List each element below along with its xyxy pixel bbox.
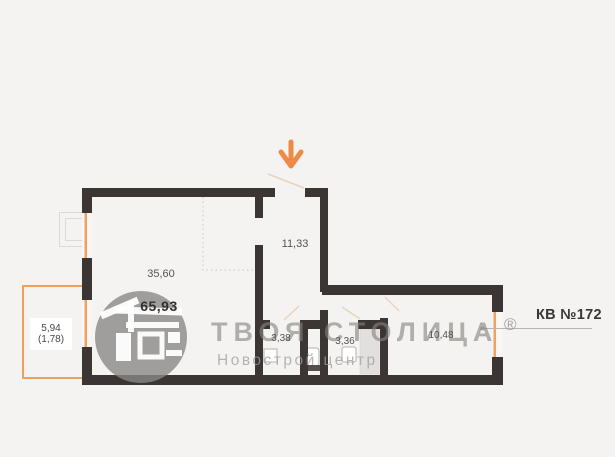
floor-plan-drawing [0, 0, 615, 457]
wc-area-label: 3,38 [263, 333, 299, 344]
wall [492, 357, 503, 385]
entry-door-swing-line [268, 174, 304, 188]
kitchen-zone-dotted-outline [203, 197, 259, 270]
living-room-area-label: 35,60 [138, 268, 184, 280]
balcony-reduced-area-label: (1,78) [38, 334, 64, 345]
neighbour-balcony-outline [60, 213, 83, 247]
wall [82, 258, 92, 300]
total-area-label: 65,93 [128, 298, 190, 314]
wall [82, 188, 92, 213]
entrance-hall-area-label: 11,33 [272, 238, 318, 250]
corridor-door-swing-line [385, 297, 399, 311]
floor-plan: ТВОЯ СТОЛИЦА ® Новострой центр 35,60 65,… [0, 0, 615, 457]
entrance-arrow-icon [281, 142, 301, 166]
wall [320, 188, 328, 292]
window-glazing [85, 300, 88, 347]
bathroom-area-label: 3,36 [327, 336, 363, 347]
registered-trademark-icon: ® [504, 315, 517, 335]
wall [255, 197, 263, 218]
apartment-number-label: КВ №172 [536, 307, 602, 323]
balcony-area-box: 5,94 (1,78) [30, 318, 72, 350]
corridor-area-label: 10,48 [419, 330, 463, 341]
wall [322, 285, 503, 295]
balcony-area-label: 5,94 [41, 323, 60, 334]
watermark-subtitle-text: Новострой центр [217, 352, 378, 370]
wall [82, 188, 275, 197]
window-glazing [85, 213, 88, 258]
